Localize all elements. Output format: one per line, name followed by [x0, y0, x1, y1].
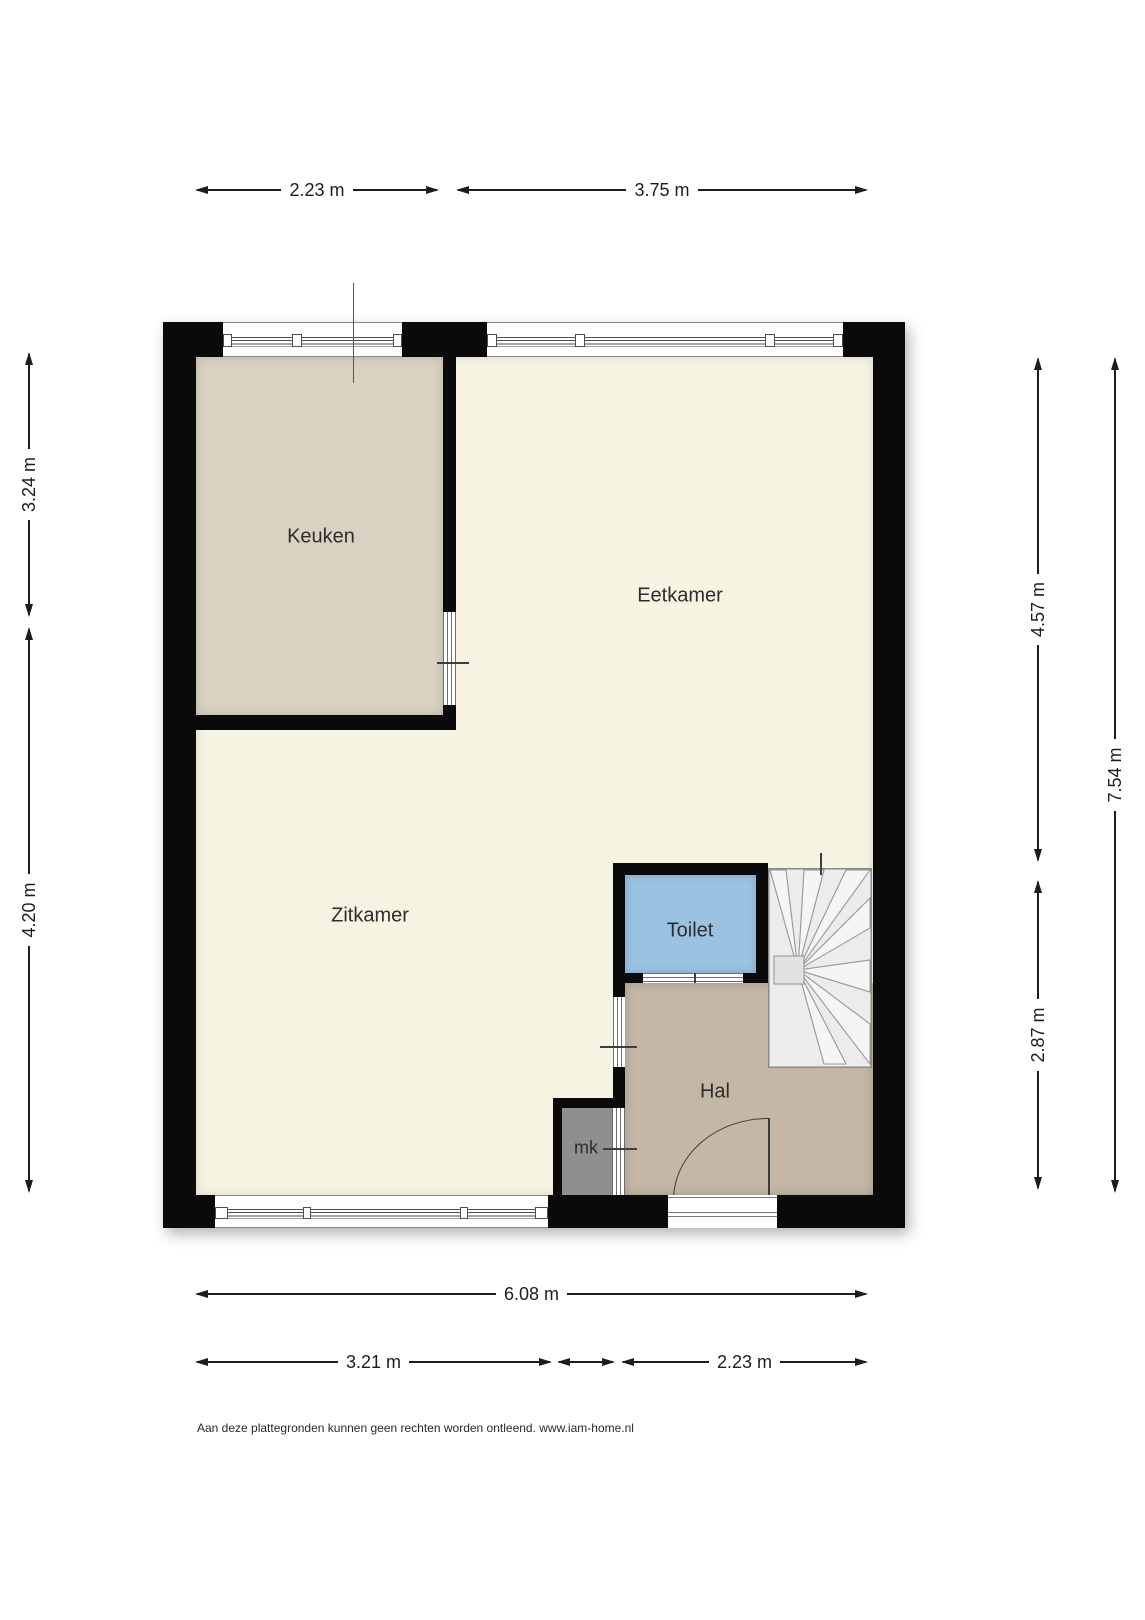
- dim-right-outer: 7.54 m: [1107, 357, 1123, 1193]
- label-zitkamer: Zitkamer: [331, 905, 409, 928]
- dim-right-inner-lower: 2.87 m: [1030, 880, 1046, 1190]
- dim-bottom-total: 6.08 m: [195, 1286, 868, 1302]
- dim-top-right: 3.75 m: [456, 182, 868, 198]
- dim-label: 2.23 m: [709, 1354, 780, 1370]
- window-mullion: [765, 334, 775, 347]
- arrow-right-icon: [539, 1358, 552, 1366]
- dim-label: 6.08 m: [496, 1286, 567, 1302]
- window-frame-cap: [393, 334, 402, 347]
- wall-toilet-top: [613, 863, 768, 875]
- label-mk: mk: [574, 1138, 598, 1159]
- dim-bottom-left: 3.21 m: [195, 1354, 552, 1370]
- wall-kitchen-right: [443, 357, 456, 612]
- wall-hall-lower: [613, 1067, 625, 1098]
- arrow-right-icon: [1034, 357, 1042, 370]
- floorplan-page: Keuken Eetkamer Zitkamer Toilet Hal mk 2…: [0, 0, 1145, 1620]
- threshold-line: [668, 1216, 777, 1217]
- dim-bottom-middle: [557, 1354, 615, 1370]
- dim-label: 3.24 m: [21, 449, 37, 520]
- window-frame-cap: [487, 334, 497, 347]
- door-kitchen-mark: [437, 662, 469, 664]
- arrow-right-icon: [426, 186, 439, 194]
- window-dining-top: [487, 322, 843, 357]
- wall-toilet-left: [613, 875, 625, 983]
- window-frame-cap: [223, 334, 232, 347]
- window-living-bottom: [215, 1195, 548, 1228]
- door-kitchen: [443, 612, 456, 710]
- wall-toilet-right: [756, 875, 768, 973]
- window-mullion: [460, 1207, 468, 1219]
- window-kitchen-top: [223, 322, 402, 357]
- wall-hall-upper: [613, 983, 625, 997]
- arrow-right-icon: [602, 1358, 615, 1366]
- dim-label: 3.75 m: [626, 182, 697, 198]
- dim-right-inner-upper: 4.57 m: [1030, 357, 1046, 862]
- dim-label: 2.87 m: [1030, 999, 1046, 1070]
- dim-bottom-right: 2.23 m: [621, 1354, 868, 1370]
- disclaimer-text: Aan deze plattegronden kunnen geen recht…: [197, 1421, 634, 1435]
- label-toilet: Toilet: [667, 920, 714, 943]
- label-hal: Hal: [700, 1081, 730, 1104]
- arrow-right-icon: [25, 352, 33, 365]
- wall-toilet-bottom-right: [743, 973, 768, 983]
- threshold-line: [668, 1212, 777, 1213]
- window-glass: [228, 1209, 535, 1219]
- window-frame-cap: [215, 1207, 228, 1219]
- arrow-right-icon: [855, 186, 868, 194]
- arrow-right-icon: [855, 1358, 868, 1366]
- front-door-opening: [668, 1195, 777, 1228]
- dim-left-upper: 3.24 m: [21, 352, 37, 617]
- door-hall-living-mark: [600, 1046, 637, 1048]
- dim-top-left: 2.23 m: [195, 182, 439, 198]
- wall-mk-left: [553, 1108, 562, 1195]
- label-keuken: Keuken: [287, 526, 355, 549]
- window-mullion: [303, 1207, 311, 1219]
- door-mk: [612, 1108, 625, 1195]
- arrow-right-icon: [1111, 357, 1119, 370]
- dim-label: 3.21 m: [338, 1354, 409, 1370]
- front-door-leaf: [768, 1118, 770, 1200]
- dim-label: 7.54 m: [1107, 739, 1123, 810]
- arrow-right-icon: [25, 627, 33, 640]
- arrow-right-icon: [1034, 880, 1042, 893]
- dim-left-lower: 4.20 m: [21, 627, 37, 1193]
- stairs: [768, 868, 872, 1068]
- wall-kitchen-right-low: [443, 705, 456, 715]
- window-mullion: [575, 334, 585, 347]
- dim-label: 2.23 m: [281, 182, 352, 198]
- label-eetkamer: Eetkamer: [637, 585, 723, 608]
- dim-label: 4.20 m: [21, 874, 37, 945]
- window-frame-cap: [833, 334, 843, 347]
- dim-label: 4.57 m: [1030, 574, 1046, 645]
- arrow-right-icon: [855, 1290, 868, 1298]
- wall-toilet-bottom-left: [613, 973, 643, 983]
- wall-kitchen-bottom: [196, 715, 456, 730]
- door-mk-mark: [603, 1148, 637, 1150]
- section-line: [353, 283, 354, 383]
- door-hall-living: [613, 997, 625, 1067]
- stairs-entry-mark: [820, 853, 822, 875]
- window-frame-cap: [535, 1207, 548, 1219]
- floorplan-building: Keuken Eetkamer Zitkamer Toilet Hal mk: [163, 322, 905, 1228]
- threshold-line: [668, 1197, 777, 1198]
- door-toilet: [643, 973, 743, 983]
- wall-mk-top: [553, 1098, 625, 1108]
- window-glass: [497, 337, 833, 347]
- window-mullion: [292, 334, 302, 347]
- window-glass: [232, 337, 393, 347]
